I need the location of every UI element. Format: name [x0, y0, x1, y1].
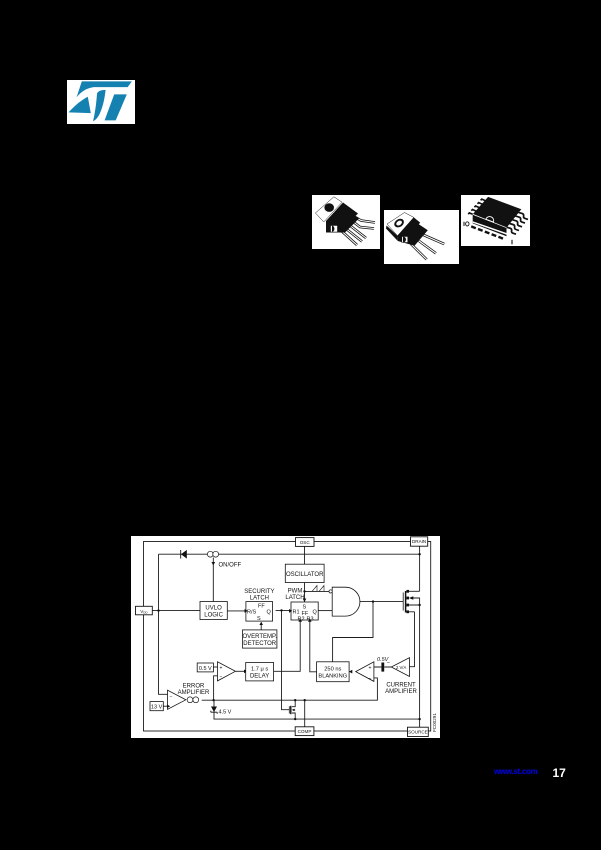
svg-text:−: − [170, 693, 173, 699]
svg-text:LATCH: LATCH [250, 595, 269, 601]
svg-text:DRAIN: DRAIN [412, 539, 426, 544]
svg-text:UVLO: UVLO [205, 605, 222, 611]
svg-text:OSC: OSC [300, 539, 311, 544]
svg-text:Q: Q [313, 609, 318, 615]
svg-text:−: − [220, 674, 223, 680]
svg-text:+: + [369, 665, 372, 671]
svg-text:R1: R1 [293, 609, 300, 615]
svg-text:4.5 V: 4.5 V [219, 709, 232, 715]
svg-text:Q: Q [267, 609, 272, 615]
svg-text:13 V: 13 V [151, 704, 163, 710]
svg-text:250 ns: 250 ns [324, 666, 341, 672]
svg-text:+: + [220, 665, 223, 671]
svg-text:LATCH: LATCH [285, 595, 304, 601]
svg-text:OSCILLATOR: OSCILLATOR [286, 571, 324, 577]
svg-text:1.7 μ s: 1.7 μ s [251, 666, 268, 672]
svg-text:S: S [303, 604, 307, 610]
svg-text:0.5 V: 0.5 V [199, 665, 212, 671]
svg-text:DETECTOR: DETECTOR [243, 641, 277, 647]
svg-text:S: S [257, 616, 261, 622]
svg-text:AMPLIFIER: AMPLIFIER [178, 690, 210, 696]
svg-text:ERROR: ERROR [183, 683, 205, 689]
svg-text:PWM: PWM [288, 588, 303, 594]
svg-text:ON/OFF: ON/OFF [219, 562, 242, 568]
svg-text:FC00291: FC00291 [432, 712, 437, 731]
svg-text:SOURCE: SOURCE [408, 729, 428, 734]
svg-text:VDD: VDD [140, 608, 148, 614]
svg-text:SECURITY: SECURITY [244, 589, 274, 595]
svg-text:AMPLIFIER: AMPLIFIER [385, 689, 417, 695]
svg-text:OVERTEMP.: OVERTEMP. [242, 634, 277, 640]
svg-text:LOGIC: LOGIC [204, 612, 223, 618]
svg-text:COMP: COMP [298, 729, 312, 734]
svg-text:BLANKING: BLANKING [318, 673, 347, 679]
svg-text:FF: FF [258, 603, 265, 609]
svg-text:DELAY: DELAY [250, 673, 269, 679]
svg-text:−: − [369, 676, 372, 682]
svg-text:R/S: R/S [247, 609, 257, 615]
svg-text:CURRENT: CURRENT [386, 682, 416, 688]
svg-text:2 V/A: 2 V/A [396, 664, 406, 669]
svg-text:−: − [387, 660, 390, 666]
